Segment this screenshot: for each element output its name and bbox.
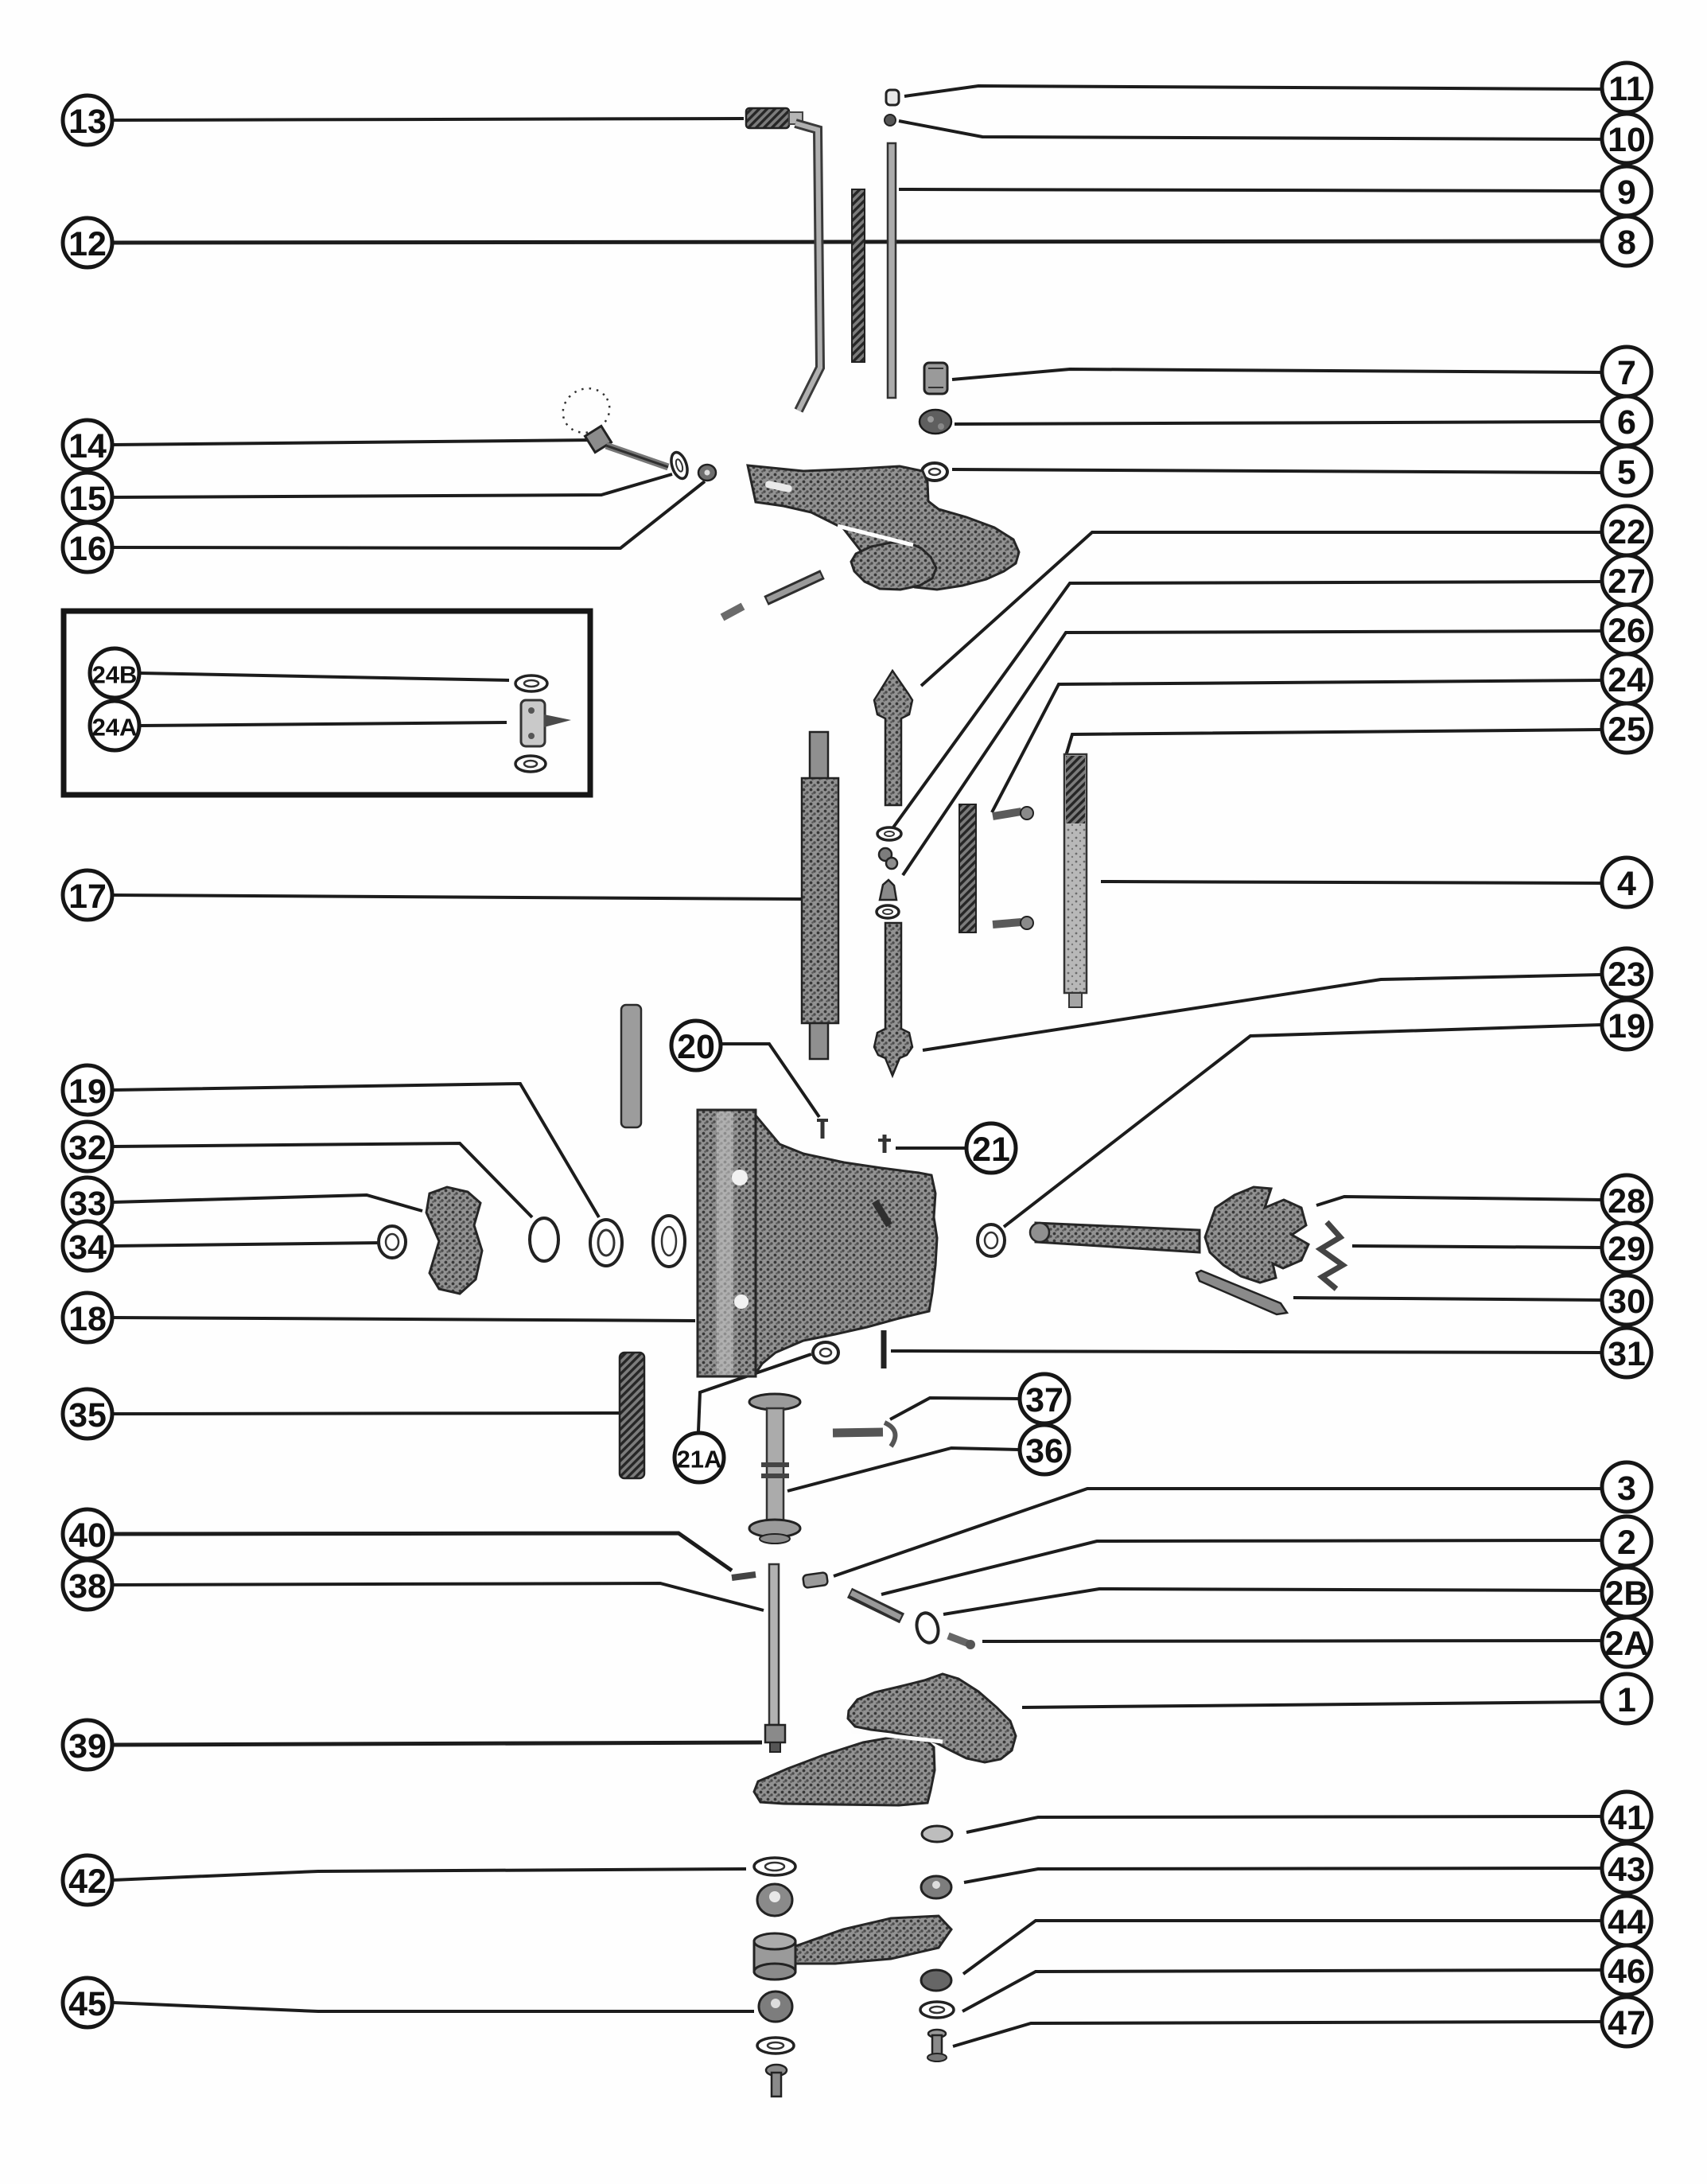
svg-text:16: 16: [68, 530, 107, 568]
svg-text:46: 46: [1608, 1952, 1646, 1991]
svg-text:21A: 21A: [677, 1446, 722, 1474]
svg-text:18: 18: [68, 1300, 107, 1338]
svg-text:11: 11: [1608, 70, 1644, 108]
svg-text:37: 37: [1025, 1381, 1063, 1419]
svg-text:9: 9: [1617, 173, 1636, 212]
svg-text:5: 5: [1617, 454, 1636, 492]
svg-text:41: 41: [1608, 1799, 1646, 1837]
svg-text:20: 20: [677, 1028, 715, 1066]
svg-text:15: 15: [68, 480, 107, 518]
svg-text:32: 32: [68, 1129, 107, 1167]
svg-text:14: 14: [68, 427, 107, 465]
svg-text:35: 35: [68, 1396, 107, 1435]
svg-text:47: 47: [1608, 2004, 1646, 2042]
svg-text:24: 24: [1608, 661, 1646, 699]
svg-text:24A: 24A: [92, 714, 138, 742]
svg-text:4: 4: [1617, 865, 1636, 903]
svg-text:13: 13: [68, 103, 107, 141]
svg-text:39: 39: [68, 1727, 107, 1765]
svg-text:24B: 24B: [92, 661, 138, 689]
svg-text:27: 27: [1608, 563, 1646, 601]
svg-text:8: 8: [1617, 224, 1636, 262]
svg-text:1: 1: [1617, 1681, 1636, 1719]
svg-text:12: 12: [68, 225, 107, 263]
svg-text:17: 17: [68, 878, 107, 916]
svg-text:28: 28: [1608, 1182, 1646, 1220]
svg-text:31: 31: [1608, 1335, 1646, 1373]
svg-text:2A: 2A: [1605, 1625, 1649, 1663]
svg-text:2B: 2B: [1605, 1575, 1649, 1613]
svg-text:21: 21: [972, 1131, 1010, 1169]
svg-text:22: 22: [1608, 513, 1646, 551]
svg-text:25: 25: [1608, 710, 1646, 749]
svg-text:19: 19: [68, 1073, 107, 1111]
svg-text:43: 43: [1608, 1851, 1646, 1889]
svg-text:34: 34: [68, 1228, 107, 1267]
svg-text:36: 36: [1025, 1432, 1063, 1470]
svg-text:33: 33: [68, 1185, 107, 1223]
svg-text:19: 19: [1608, 1007, 1646, 1045]
svg-text:30: 30: [1608, 1283, 1646, 1321]
svg-text:2: 2: [1617, 1524, 1636, 1562]
svg-text:44: 44: [1608, 1903, 1646, 1941]
svg-text:7: 7: [1617, 354, 1636, 392]
svg-text:26: 26: [1608, 612, 1646, 650]
svg-text:6: 6: [1617, 403, 1636, 442]
svg-text:29: 29: [1608, 1230, 1646, 1268]
svg-text:40: 40: [68, 1516, 107, 1555]
svg-text:10: 10: [1608, 121, 1646, 159]
svg-text:45: 45: [68, 1985, 107, 2023]
svg-text:3: 3: [1617, 1470, 1636, 1508]
svg-text:42: 42: [68, 1863, 107, 1901]
svg-text:38: 38: [68, 1567, 107, 1606]
svg-text:23: 23: [1608, 956, 1646, 994]
